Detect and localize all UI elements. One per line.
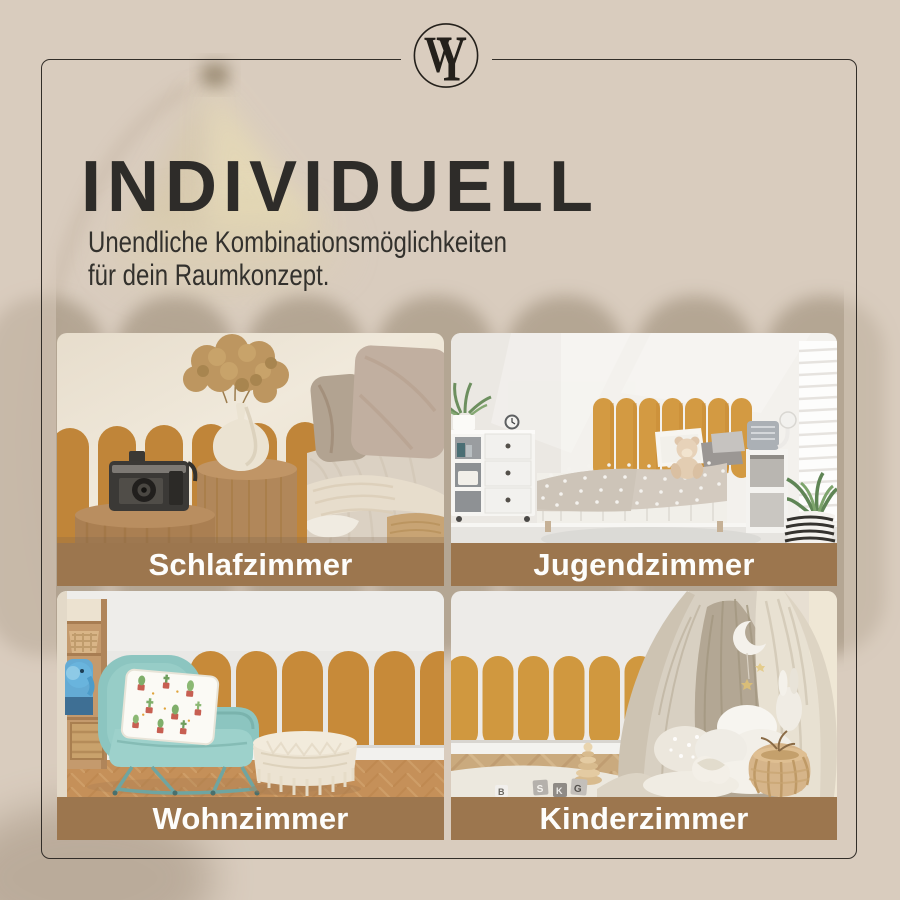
svg-text:S: S: [536, 784, 544, 795]
svg-text:B: B: [498, 787, 505, 797]
svg-text:Y: Y: [436, 23, 467, 96]
svg-text:G: G: [573, 784, 582, 796]
svg-text:K: K: [556, 786, 563, 796]
